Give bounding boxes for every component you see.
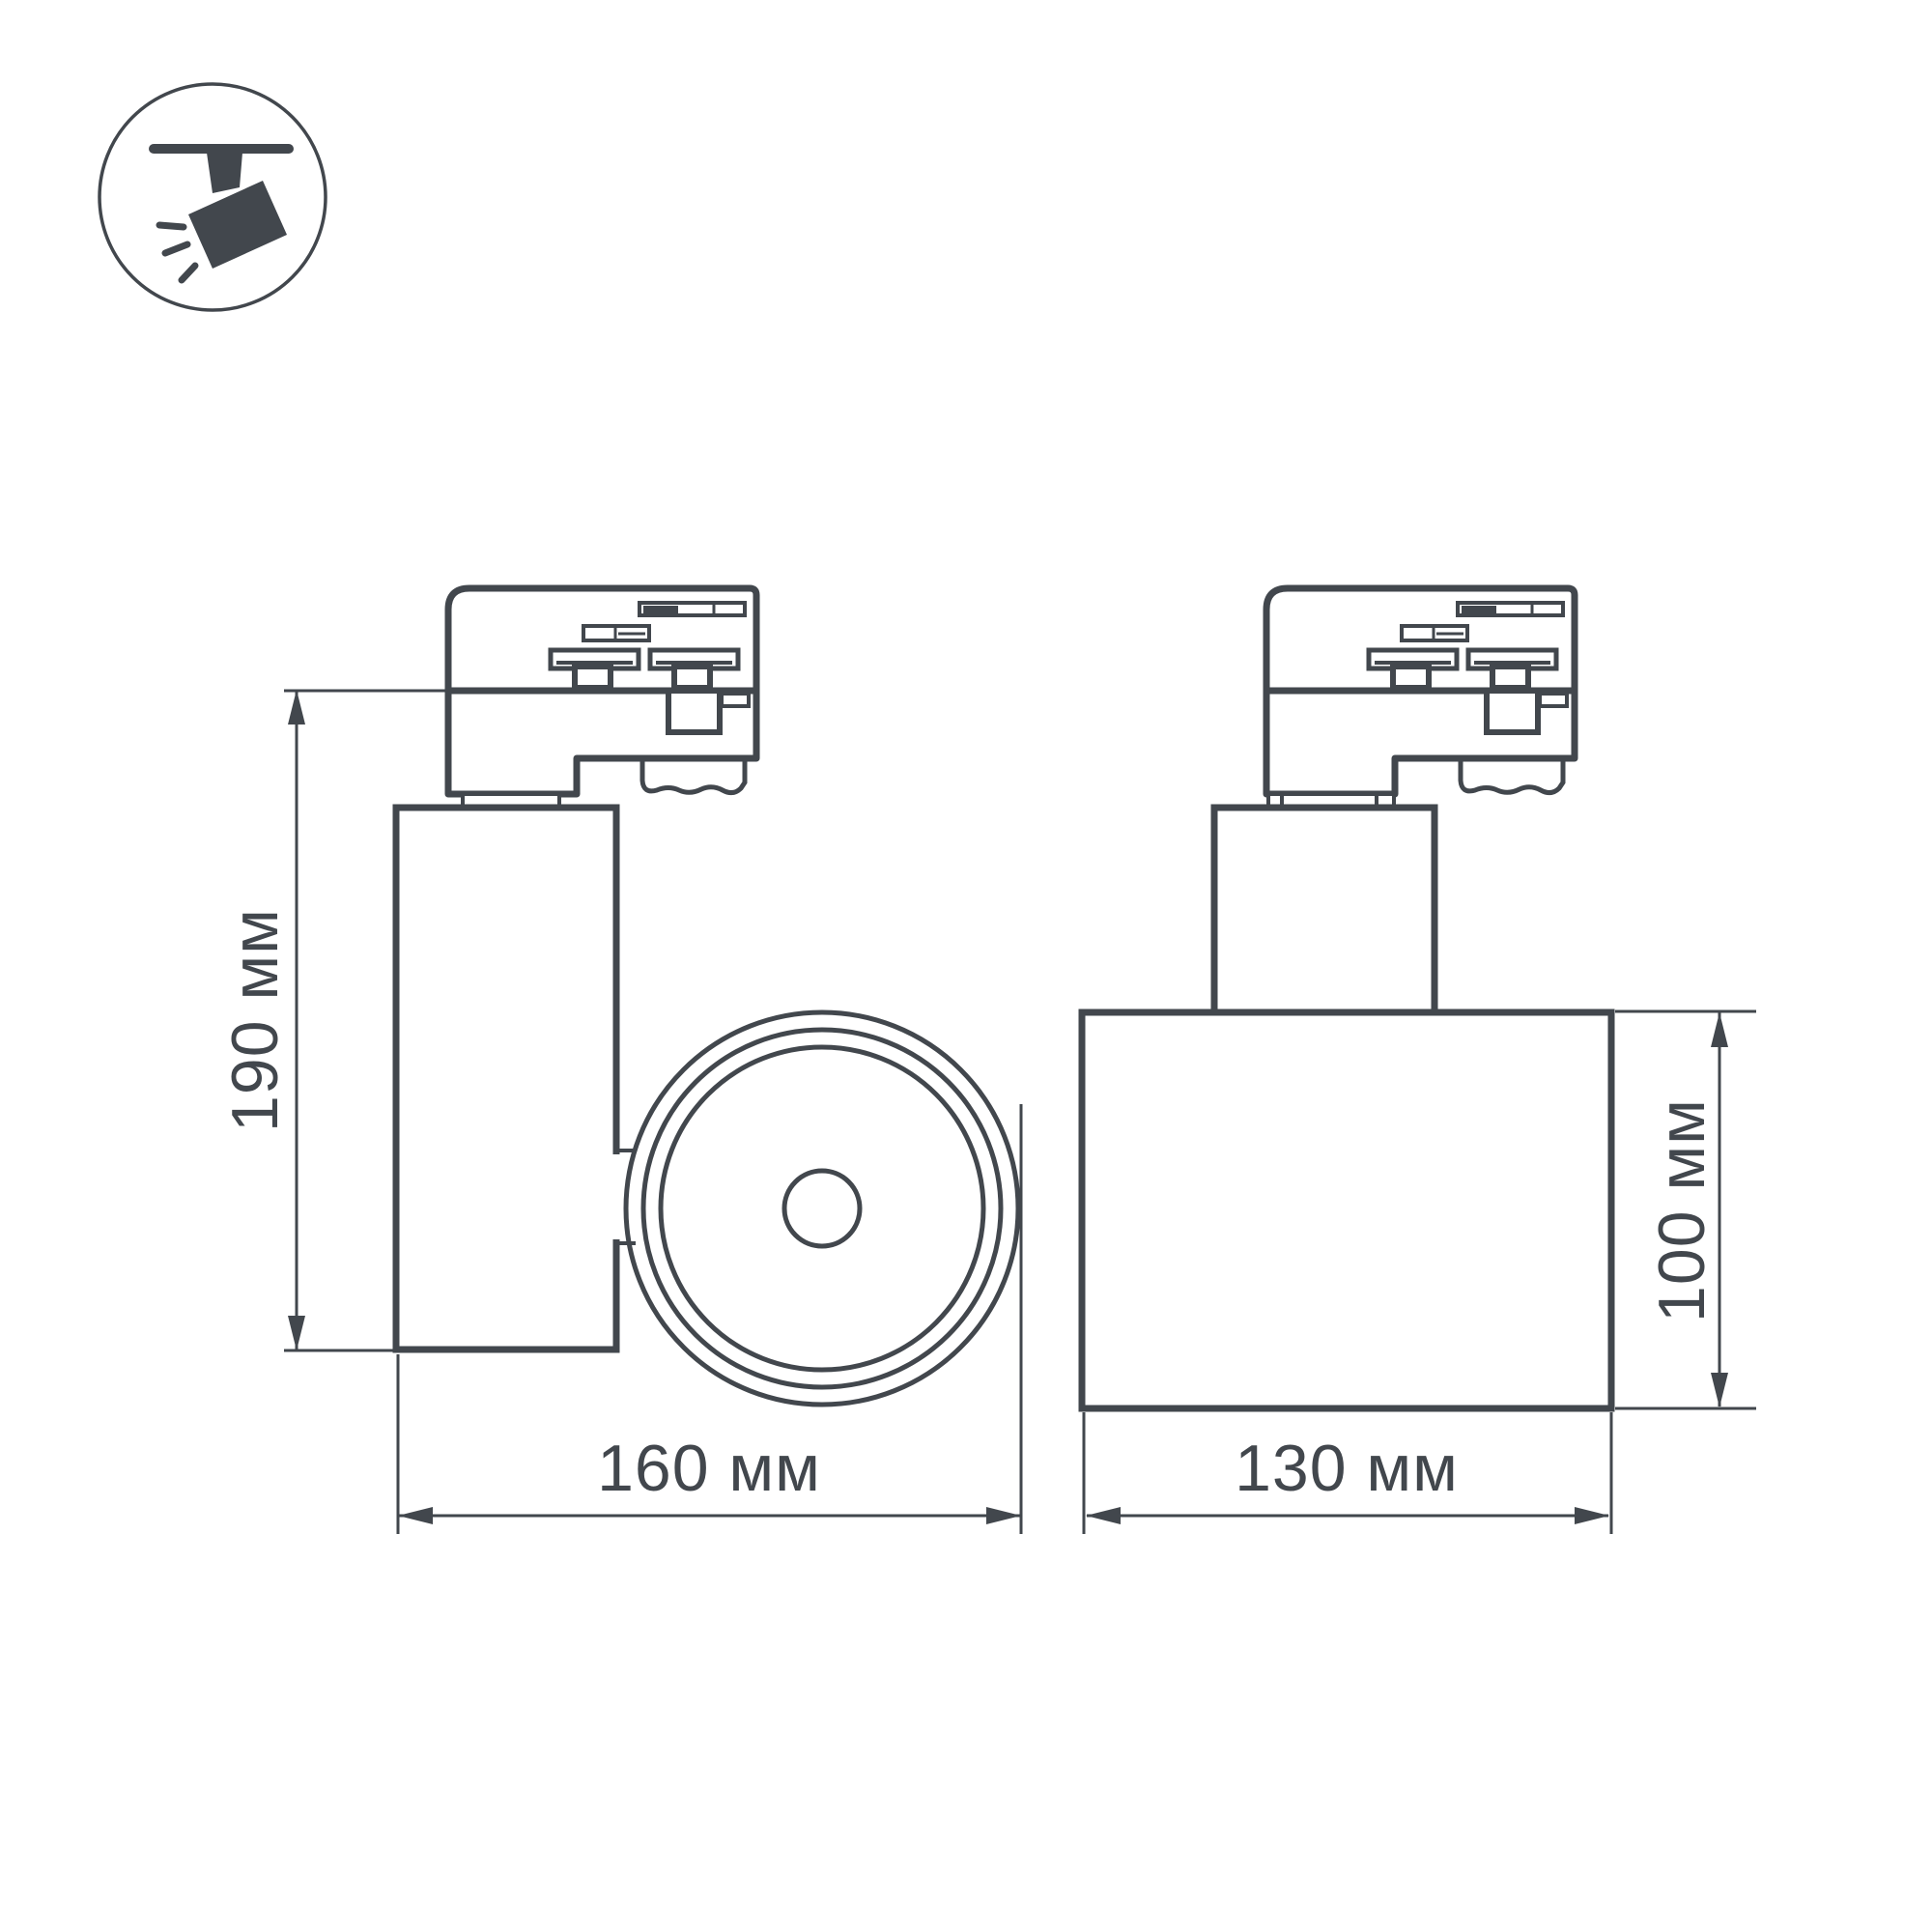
- side-view-drawing: [396, 588, 1018, 1405]
- adapter-terminal-block-top: [1458, 603, 1563, 615]
- bracket-gap-mask: [610, 1154, 622, 1239]
- width-label-back: 130 мм: [1235, 1432, 1459, 1505]
- lens-center-dot: [784, 1171, 860, 1246]
- icon-lamp-head: [188, 181, 287, 269]
- adapter-lock-stem: [668, 691, 720, 732]
- lamp-body-side: [396, 808, 616, 1350]
- arrowhead-up: [1711, 1012, 1728, 1047]
- lamp-body-back: [1082, 1012, 1611, 1408]
- dimension-drawing-page: 190 мм 160 мм 100 мм 130 мм: [0, 0, 1932, 1932]
- back-view-drawing: [1082, 588, 1611, 1408]
- adapter-notch: [722, 694, 749, 706]
- track-spotlight-icon: [99, 84, 326, 310]
- adapter-terminal-block-mid: [583, 626, 649, 640]
- arrowhead-up: [288, 690, 305, 724]
- height-label-back: 100 мм: [1645, 1098, 1719, 1322]
- lens-front-circle: [626, 1012, 1018, 1405]
- icon-light-rays: [159, 225, 195, 280]
- arrowhead-down: [1711, 1373, 1728, 1407]
- track-light-dimension-diagram: 190 мм 160 мм 100 мм 130 мм: [0, 0, 1932, 1932]
- height-label-side: 190 мм: [218, 908, 292, 1132]
- adapter-terminal-block-mid: [1402, 626, 1467, 640]
- adapter-wavy-connector: [642, 759, 745, 793]
- icon-mount-stem: [207, 153, 242, 193]
- track-adapter-side: [448, 588, 756, 808]
- mount-yoke-back: [1214, 808, 1435, 1012]
- track-adapter-back: [1266, 588, 1575, 808]
- arrowhead-left: [398, 1507, 433, 1524]
- arrowhead-left: [1086, 1507, 1121, 1524]
- adapter-wavy-connector: [1461, 759, 1563, 793]
- arrowhead-right: [986, 1507, 1021, 1524]
- icon-track-bar: [149, 144, 294, 154]
- adapter-terminal-block-top: [639, 603, 745, 615]
- width-label-side: 160 мм: [597, 1432, 821, 1505]
- adapter-lock-stem: [1487, 691, 1538, 732]
- icon-circle-border: [99, 84, 326, 310]
- arrowhead-down: [288, 1316, 305, 1350]
- adapter-notch: [1540, 694, 1567, 706]
- arrowhead-right: [1575, 1507, 1609, 1524]
